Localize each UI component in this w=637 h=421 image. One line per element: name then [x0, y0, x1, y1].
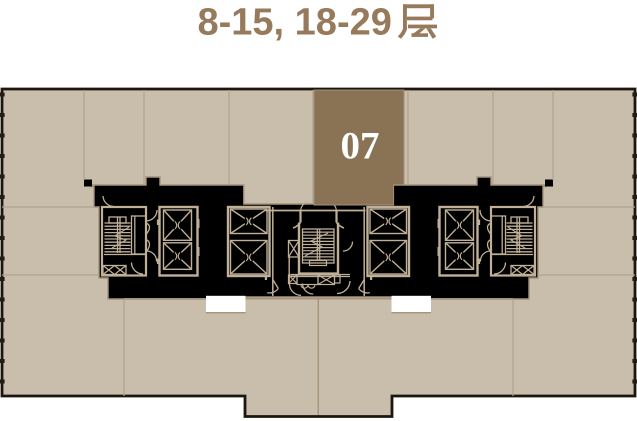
svg-text:07: 07 — [341, 125, 380, 168]
svg-text:8-15, 18-29: 8-15, 18-29 — [198, 2, 392, 44]
